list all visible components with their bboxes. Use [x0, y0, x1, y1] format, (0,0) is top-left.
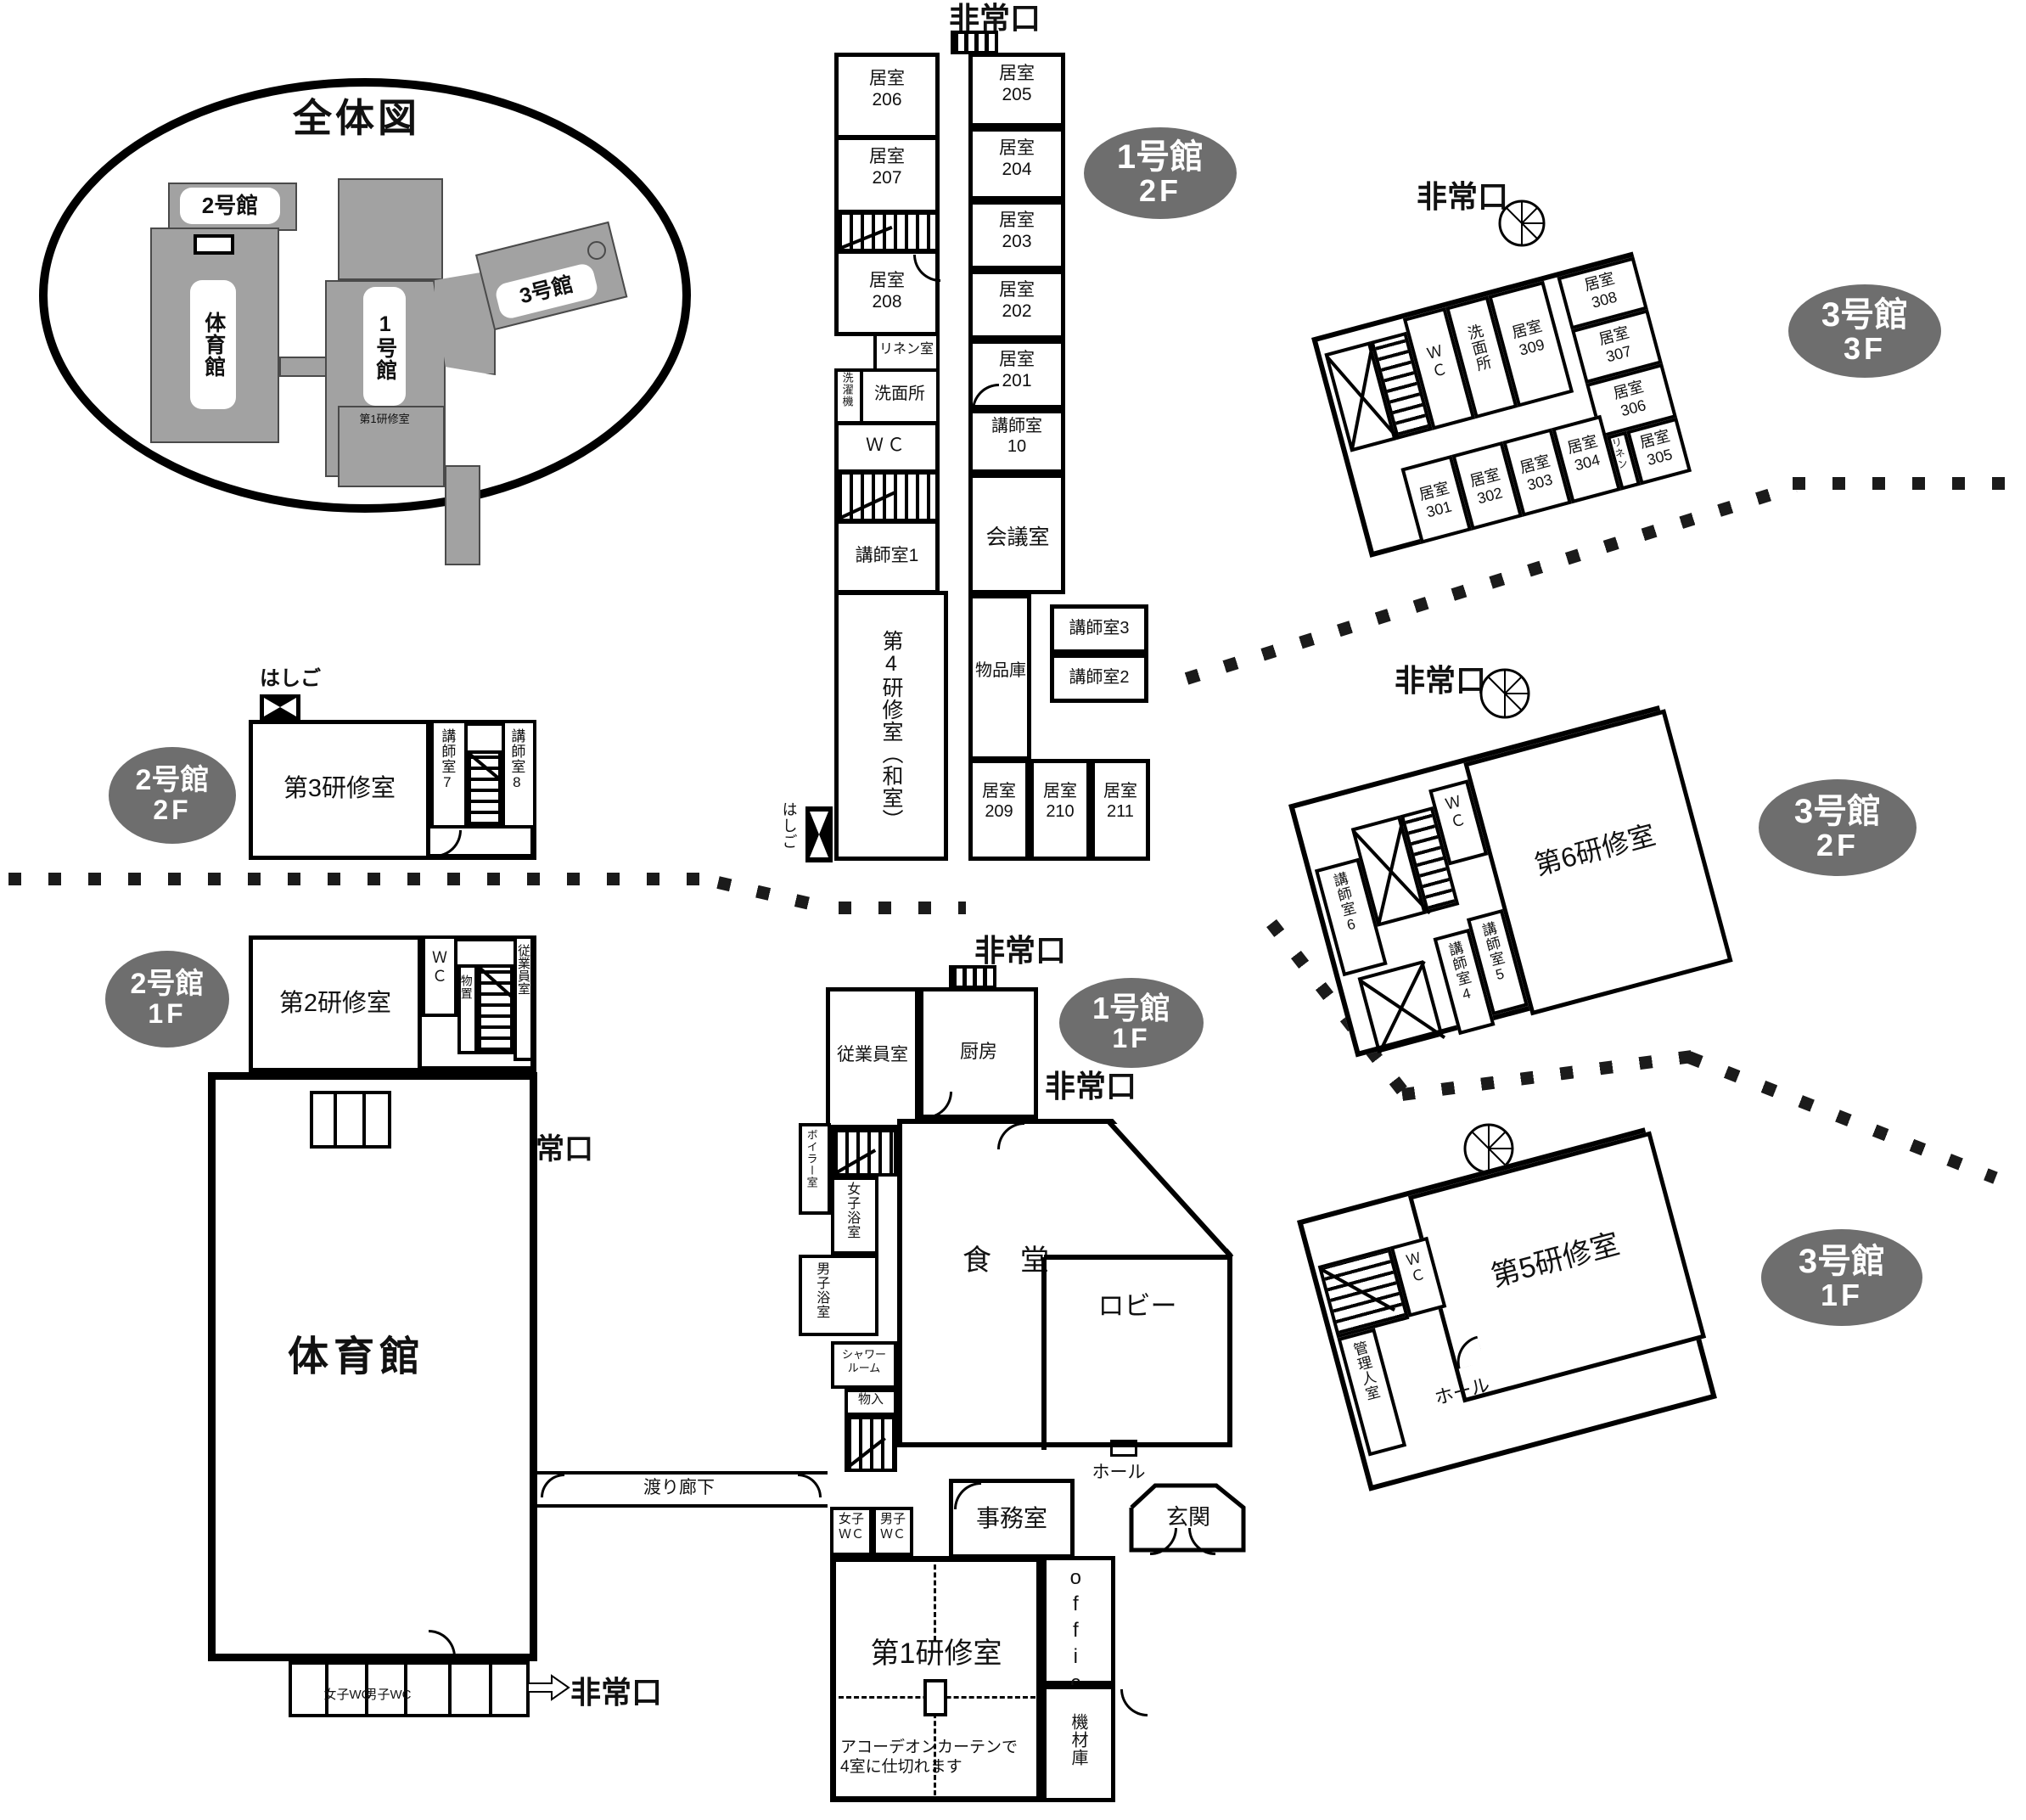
- overview-bldg1-text: 1号館: [373, 312, 396, 381]
- section-line-left: [8, 873, 720, 885]
- corridor-door-right: [798, 1474, 822, 1497]
- b1f2-washstand-label: 洗面所: [860, 384, 940, 404]
- badge-b3f2: 3号館 2F: [1759, 779, 1917, 876]
- b2f2-stairs: [468, 750, 502, 829]
- badge-b1f2-floor: 2F: [1139, 175, 1181, 207]
- b2f1-dai2-label: 第2研修室: [249, 989, 422, 1019]
- b1f2-wc-label: ＷＣ: [834, 435, 940, 456]
- b1f1-curtain-box: [923, 1679, 947, 1716]
- badge-b3f3-floor: 3F: [1844, 333, 1886, 365]
- b1f1-boiler-label: ボイラー室: [805, 1129, 818, 1188]
- b2f2-ladder-icon: [260, 694, 300, 720]
- b3f2-building: 講師室6 Ｗ Ｃ 第6研修室 講師室4 講師室5: [1288, 705, 1726, 1057]
- badge-b1f1: 1号館 1F: [1059, 978, 1204, 1068]
- badge-b2f2-floor: 2F: [153, 796, 191, 825]
- b1f1-lobby-label: ロビー: [1065, 1290, 1209, 1322]
- b2f1-stairs: [478, 964, 514, 1054]
- badge-b3f2-name: 3号館: [1794, 794, 1881, 829]
- overview-gym-label: 体育館: [190, 280, 236, 409]
- overview-bldg1-label: 1号館: [363, 287, 406, 406]
- badge-b2f1: 2号館 1F: [105, 951, 229, 1048]
- b1f2-room-202-label: 居室 202: [968, 279, 1065, 322]
- b1f1-shower-label: シャワー ルーム: [831, 1348, 897, 1374]
- b1f2-lecturer3-label: 講師室3: [1050, 618, 1148, 638]
- b1f2-ladder-label: はしご: [779, 801, 798, 850]
- section-line-lower-right-b: [1401, 1050, 1693, 1101]
- section-line-lower-right-c: [1686, 1052, 1997, 1184]
- badge-b1f1-name: 1号館: [1092, 992, 1170, 1025]
- badge-b3f1-floor: 1F: [1821, 1279, 1863, 1312]
- gym-mwc-label: 男子WC: [362, 1688, 414, 1703]
- overview-bldg3-text: 3号館: [518, 273, 576, 309]
- b1f2-stairs-upper: [834, 211, 940, 253]
- b2f1-storage-label: 物置: [459, 975, 474, 1000]
- b1f1-wbath-label: 女子浴室: [844, 1182, 860, 1239]
- gym-windows-div2: [362, 1094, 366, 1149]
- b1f2-storage-label: 物品庫: [962, 660, 1039, 681]
- b1f2-lecturer2-label: 講師室2: [1050, 667, 1148, 688]
- gym-wc-div5: [489, 1665, 492, 1716]
- b2f2-lecturer8-label: 講師室8: [508, 728, 525, 791]
- b1f1-entrance-label: 玄関: [1133, 1504, 1243, 1531]
- overview-annex-rooms: [445, 465, 480, 565]
- b3f3-spiral-stair: [1497, 199, 1546, 248]
- b2f1-wc-label: Ｗ Ｃ: [422, 949, 457, 986]
- b1f2-linen-label: リネン室: [873, 341, 940, 357]
- b1f1-dining-label: 食 堂: [921, 1244, 1091, 1278]
- b1f1-curtain-v1: [934, 1564, 936, 1641]
- b1f1-kizai-door: [1120, 1689, 1148, 1716]
- gym-exit-label: 非常口: [570, 1674, 698, 1710]
- corridor-wall-top: [537, 1471, 828, 1475]
- section-line-upper-right-end: [1793, 477, 2026, 490]
- badge-b3f3: 3号館 3F: [1788, 284, 1941, 378]
- corridor-door-left: [541, 1474, 564, 1497]
- corridor-wall-bottom: [537, 1504, 828, 1508]
- b1f1-lobby-wall-left: [1041, 1257, 1047, 1450]
- overview-gym-text: 体育館: [201, 312, 225, 378]
- b1f2-room-206-label: 居室 206: [834, 68, 940, 110]
- b1f1-hall-mark: [1110, 1440, 1137, 1457]
- overview-title: 全体図: [246, 95, 467, 142]
- gym-label: 体育館: [238, 1333, 475, 1382]
- badge-b3f2-floor: 2F: [1816, 829, 1859, 862]
- badge-b3f3-name: 3号館: [1821, 297, 1908, 333]
- b2f2-lecturer7-label: 講師室7: [438, 728, 455, 791]
- b1f2-room-201-label: 居室 201: [968, 349, 1065, 391]
- b1f1-dai1-label: 第1研修室: [830, 1637, 1042, 1671]
- badge-b2f1-name: 2号館: [131, 969, 205, 1000]
- b3f3-building: Ｗ Ｃ 洗面所 居室 309 居室 308 居室 307 居室 306 リネン …: [1311, 252, 1692, 558]
- b1f2-room-209-label: 居室 209: [968, 781, 1030, 822]
- gym-exit-arrow: [528, 1676, 569, 1699]
- b1f1-staffroom-label: 従業員室: [822, 1044, 923, 1065]
- b1f2-meeting-label: 会議室: [965, 525, 1070, 550]
- b1f1-mono-label: 物入: [845, 1392, 897, 1407]
- b1f1-curtain-note: アコーデオンカーテンで 4室に仕切れます: [840, 1739, 1035, 1778]
- b2f2-dai3-label: 第3研修室: [249, 774, 430, 804]
- b1f2-washer-label: 洗濯機: [840, 372, 854, 407]
- b1f2-room-207-label: 居室 207: [834, 146, 940, 188]
- overview-bldg1-top: [338, 178, 443, 280]
- b1f1-mwc-label: 男子 ＷＣ: [873, 1512, 913, 1542]
- overview-gym-windows: [194, 234, 234, 255]
- gym-windows: [310, 1091, 391, 1149]
- badge-b2f2-name: 2号館: [136, 766, 210, 796]
- badge-b2f2: 2号館 2F: [109, 747, 236, 844]
- b1f2-room-203-label: 居室 203: [968, 210, 1065, 252]
- section-line-left-slope: [716, 876, 833, 915]
- badge-b1f2-name: 1号館: [1117, 139, 1204, 175]
- b1f1-wwc-label: 女子 ＷＣ: [830, 1512, 873, 1542]
- b1f2-lecturer10-label: 講師室 10: [968, 416, 1065, 457]
- b1f2-exit-stairs: [951, 31, 998, 54]
- b1f1-kitchen-label: 厨房: [919, 1041, 1038, 1063]
- badge-b1f2: 1号館 2F: [1084, 127, 1237, 219]
- b1f2-room-210-label: 居室 210: [1030, 781, 1091, 822]
- overview-bldg2-label: 2号館: [180, 188, 280, 224]
- b1f1-exit-top-stairs: [949, 965, 996, 989]
- b1f2-room-204-label: 居室 204: [968, 138, 1065, 180]
- b1f2-room-211-label: 居室 211: [1091, 781, 1150, 822]
- overview-spiral-stair: [587, 241, 606, 260]
- gym-windows-div1: [334, 1094, 337, 1149]
- overview-room1-label: 第1研修室: [329, 413, 440, 426]
- badge-b3f1-name: 3号館: [1799, 1244, 1885, 1279]
- b1f1-exit-top-label: 非常口: [952, 932, 1088, 969]
- b1f2-room-205-label: 居室 205: [968, 63, 1065, 105]
- badge-b2f1-floor: 1F: [148, 1000, 186, 1029]
- b2f1-staff-label: 従業員室: [515, 944, 530, 995]
- floor-plan-page: 全体図 2号館 体育館 1号館 第1研修室 3号館 非常口 居室 206 居室 …: [0, 0, 2026, 1820]
- badge-b3f1: 3号館 1F: [1761, 1229, 1922, 1326]
- b1f1-exit-right-label: 非常口: [1023, 1068, 1159, 1104]
- b3f2-spiral-stair: [1479, 667, 1531, 720]
- b1f1-mbath: [799, 1255, 878, 1336]
- overview-corridor: [279, 357, 328, 377]
- overview-bldg2-text: 2号館: [202, 194, 258, 218]
- b1f2-dai4-label: 第4研修室（和室）: [878, 630, 904, 831]
- badge-b1f1-floor: 1F: [1112, 1025, 1150, 1053]
- b1f1-lobby-wall-top: [1044, 1255, 1229, 1260]
- b1f1-mbath-label: 男子浴室: [813, 1261, 829, 1319]
- corridor-label: 渡り廊下: [594, 1477, 764, 1498]
- b1f2-lecturer1-label: 講師室1: [834, 545, 940, 566]
- b2f2-ladder-label: はしご: [248, 667, 333, 692]
- gym-wc-div4: [448, 1665, 452, 1716]
- b1f1-kizai-label: 機材庫: [1068, 1713, 1088, 1767]
- section-line-left-end: [839, 902, 966, 914]
- b1f2-ladder-icon: [805, 806, 833, 862]
- b3f1-building: 第5研修室 Ｗ Ｃ 管理人室 ホール: [1297, 1127, 1717, 1491]
